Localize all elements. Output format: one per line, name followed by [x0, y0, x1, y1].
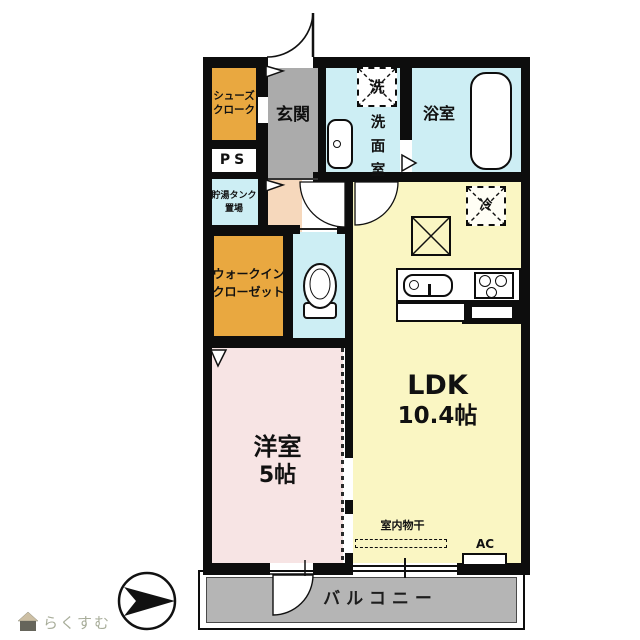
label-shoes-closet: シューズ クローク	[208, 86, 260, 120]
label-ac: AC	[468, 537, 502, 551]
label-ps: PS	[210, 149, 258, 172]
label-wic: ウォークイン クローゼット	[212, 262, 285, 304]
wic-line2: クローゼット	[212, 283, 284, 301]
label-bathroom: 浴室	[414, 102, 464, 126]
washroom-char-2: 面	[371, 135, 386, 156]
entrance-step-marker-top	[266, 66, 283, 77]
label-western-size: 5帖	[230, 462, 325, 490]
shoes-closet-line1: シューズ	[213, 89, 254, 103]
label-washroom: 洗 面 室	[368, 111, 388, 173]
entrance-step-marker-bottom	[266, 180, 283, 191]
label-ldk-name: LDK	[390, 370, 485, 402]
label-ldk-size: 10.4帖	[385, 402, 490, 430]
label-washer: 洗	[357, 67, 397, 107]
bath-door-marker	[402, 155, 416, 171]
logo-house-icon	[18, 612, 38, 631]
watermark-text: らくすむ	[43, 612, 138, 632]
label-western-name: 洋室	[230, 432, 325, 462]
washroom-char-3: 室	[371, 159, 386, 180]
toilet-bowl	[304, 264, 336, 308]
toilet-door-swing	[300, 182, 345, 227]
floor-plan: シューズ クローク PS 貯湯タンク 置場 玄関 洗 洗 面 室 浴室 ウォーク…	[0, 0, 640, 640]
washroom-char-1: 洗	[371, 111, 386, 132]
tank-line1: 貯湯タンク	[211, 190, 256, 204]
label-fridge: 冷	[466, 186, 506, 226]
shoes-closet-line2: クローク	[213, 103, 255, 117]
label-balcony: バルコニー	[278, 589, 483, 611]
plan-overlay	[0, 0, 640, 640]
ldk-door-swing	[355, 182, 398, 225]
tank-line2: 置場	[225, 203, 243, 217]
label-indoor-drying: 室内物干	[355, 518, 450, 533]
label-tank: 貯湯タンク 置場	[206, 185, 262, 221]
wic-line1: ウォークイン	[212, 265, 284, 283]
western-door-marker	[211, 350, 226, 366]
label-entrance: 玄関	[270, 103, 316, 129]
